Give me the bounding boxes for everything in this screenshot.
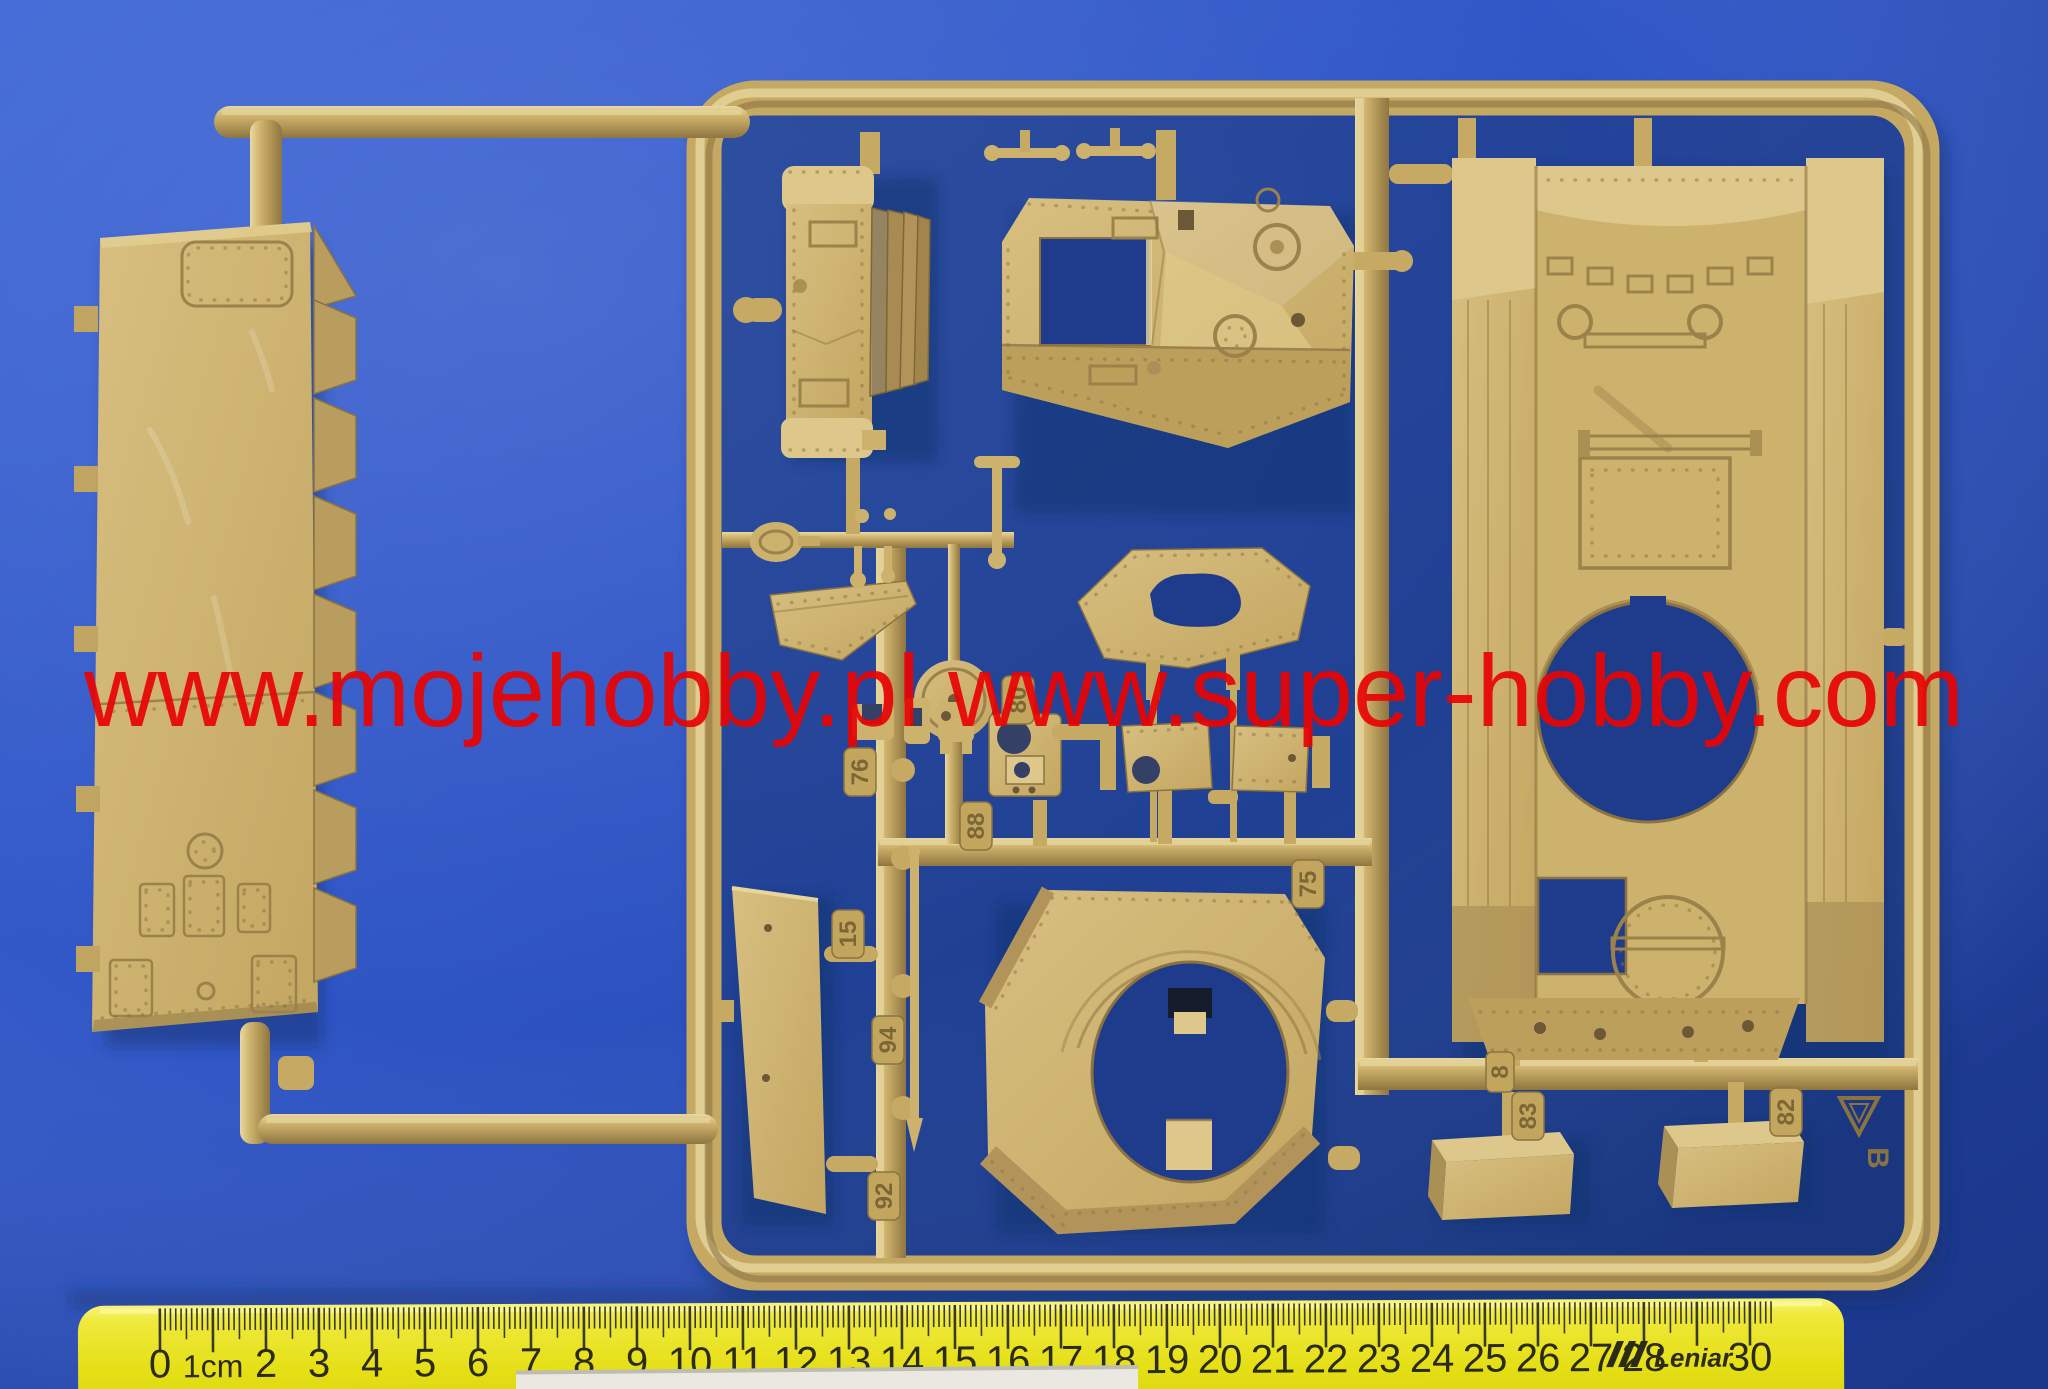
ruler-number: 1cm	[183, 1348, 244, 1384]
part-number: 76	[847, 759, 874, 786]
hull-top	[1452, 158, 1884, 1060]
ruler-number: 2	[255, 1342, 277, 1386]
turret-roof	[985, 890, 1325, 1226]
ruler-number: 21	[1251, 1337, 1296, 1381]
ruler-number: 24	[1410, 1337, 1455, 1381]
ruler-number: 19	[1145, 1338, 1190, 1382]
ruler-number: 20	[1198, 1338, 1243, 1382]
ruler-number: 26	[1516, 1336, 1561, 1380]
part-number: 82	[1773, 1099, 1800, 1126]
part-number: 83	[1515, 1103, 1542, 1130]
mudguard-box-1	[1428, 1132, 1574, 1220]
watermark-text: www.mojehobby.pl www.super-hobby.com	[83, 634, 1964, 748]
ruler-number: 30	[1728, 1335, 1773, 1379]
ruler-number: 0	[149, 1342, 171, 1386]
part-number: 8	[1487, 1065, 1514, 1078]
svg-text:B: B	[1861, 1147, 1894, 1169]
part-number: 88	[963, 813, 990, 840]
sprue-photo: 76 80 88 15 94 92 75 8 83 82 B www.mojeh…	[0, 0, 2048, 1389]
ruler-number: 27	[1569, 1336, 1614, 1380]
ruler-number: 6	[467, 1341, 489, 1385]
part-number: 15	[835, 921, 862, 948]
ruler-number: 25	[1463, 1337, 1508, 1381]
part-number: 92	[871, 1183, 898, 1210]
sprue-letter: B	[1861, 1147, 1894, 1169]
ruler-number: 3	[308, 1342, 330, 1386]
ruler-number: 23	[1357, 1337, 1402, 1381]
ruler-brand: Leniar	[1654, 1343, 1734, 1373]
ruler-number: 22	[1304, 1337, 1349, 1381]
part-number: 94	[875, 1026, 902, 1053]
part-number: 75	[1295, 871, 1322, 898]
hull-side-panel	[74, 222, 356, 1032]
photo-stage: 76 80 88 15 94 92 75 8 83 82 B www.mojeh…	[0, 0, 2048, 1389]
ruler-number: 4	[361, 1341, 383, 1385]
ruler-number: 5	[414, 1341, 436, 1385]
